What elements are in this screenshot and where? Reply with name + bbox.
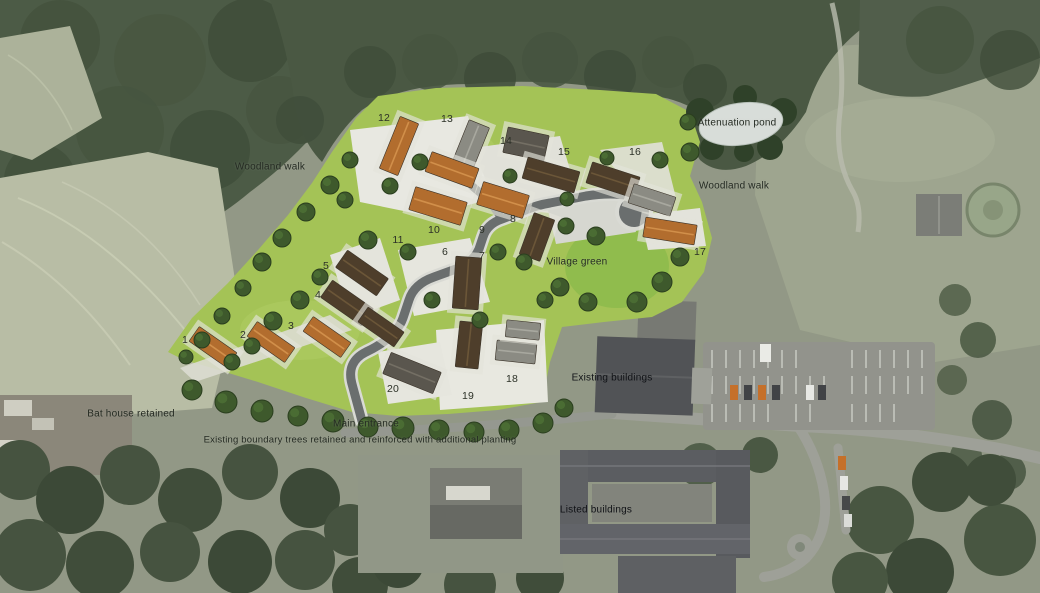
tree-canopy [671, 248, 689, 266]
tree-canopy [558, 218, 574, 234]
tree-canopy [342, 152, 358, 168]
tree-canopy [537, 292, 553, 308]
tree-canopy [214, 308, 230, 324]
tree-canopy [652, 152, 668, 168]
tree-canopy [587, 227, 605, 245]
tree-canopy [627, 292, 647, 312]
tree-canopy [297, 203, 315, 221]
tree-canopy [490, 244, 506, 260]
tree-canopy [503, 169, 517, 183]
tree-canopy [359, 231, 377, 249]
tree-canopy [560, 192, 574, 206]
aerial-masterplan-graphic [0, 0, 1040, 593]
site-plan-aerial-view: Attenuation pondWoodland walkWoodland wa… [0, 0, 1040, 593]
tree-canopy [412, 154, 428, 170]
tree-canopy [337, 192, 353, 208]
tree-canopy [392, 417, 414, 439]
tree-canopy [179, 350, 193, 364]
tree-canopy [215, 391, 237, 413]
tree-canopy [288, 406, 308, 426]
tree-canopy [680, 114, 696, 130]
tree-canopy [321, 176, 339, 194]
tree-canopy [358, 417, 378, 437]
tree-canopy [194, 332, 210, 348]
tree-canopy [516, 254, 532, 270]
tree-canopy [551, 278, 569, 296]
tree-canopy [264, 312, 282, 330]
tree-canopy [182, 380, 202, 400]
tree-canopy [652, 272, 672, 292]
tree-canopy [312, 269, 328, 285]
tree-canopy [600, 151, 614, 165]
tree-canopy [273, 229, 291, 247]
tree-canopy [424, 292, 440, 308]
tree-canopy [224, 354, 240, 370]
tree-canopy [579, 293, 597, 311]
tree-canopy [291, 291, 309, 309]
tree-canopy [400, 244, 416, 260]
tree-canopy [555, 399, 573, 417]
house-roof-grey [500, 314, 547, 345]
tree-canopy [464, 422, 484, 442]
house-roof-brown [447, 251, 487, 315]
tree-canopy [681, 143, 699, 161]
tree-canopy [322, 410, 344, 432]
tree-canopy [499, 420, 519, 440]
tree-canopy [251, 400, 273, 422]
tree-canopy [244, 338, 260, 354]
tree-canopy [472, 312, 488, 328]
tree-canopy [235, 280, 251, 296]
tree-canopy [429, 420, 449, 440]
tree-canopy [533, 413, 553, 433]
tree-canopy [253, 253, 271, 271]
tree-canopy [382, 178, 398, 194]
